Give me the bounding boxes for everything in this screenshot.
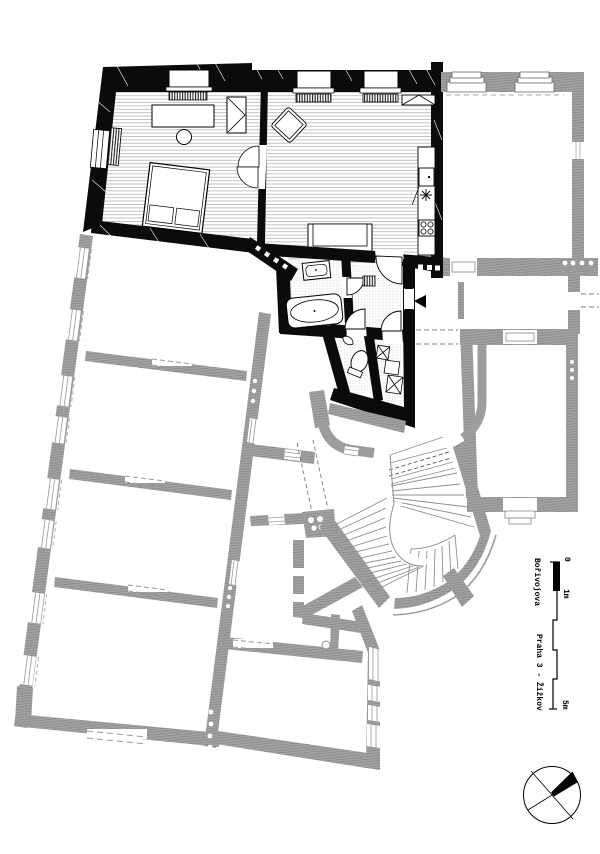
svg-text:Praha 3 - Žižkov: Praha 3 - Žižkov [534,634,543,711]
svg-text:1m: 1m [561,589,570,599]
svg-text:5m: 5m [560,700,569,710]
svg-text:Bořivojova: Bořivojova [532,558,541,606]
svg-text:0: 0 [562,557,571,562]
